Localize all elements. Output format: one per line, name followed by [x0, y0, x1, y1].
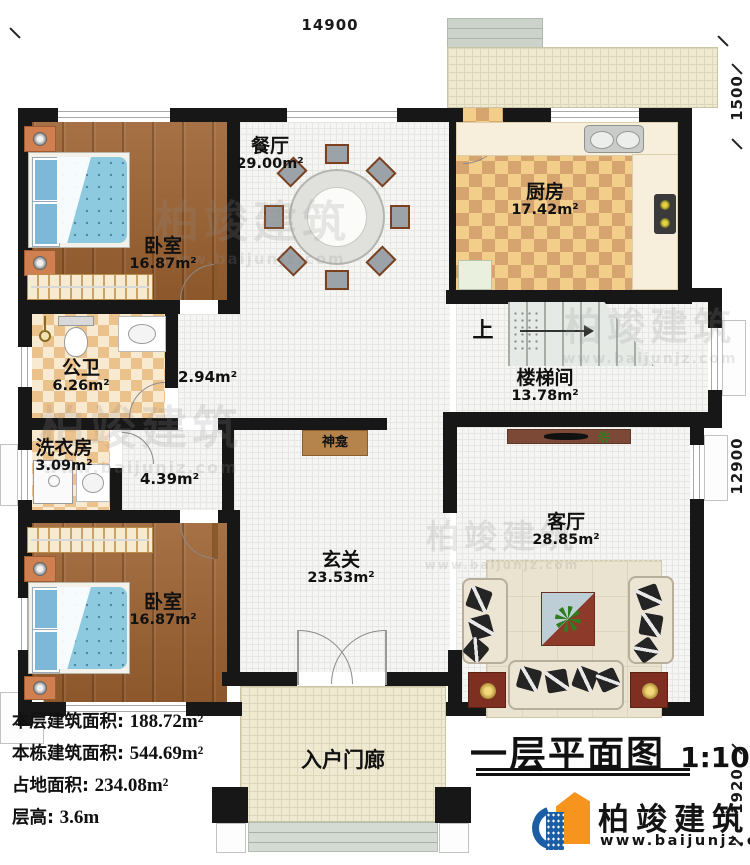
- wall: [165, 314, 178, 388]
- door-leaf: [385, 630, 387, 685]
- stats-label: 本层建筑面积:: [12, 712, 124, 732]
- wall: [218, 300, 240, 314]
- wall: [18, 510, 180, 523]
- lamp: [33, 681, 47, 695]
- kitchen-counter: [456, 122, 678, 156]
- nightstand: [24, 556, 56, 582]
- wardrobe: [27, 274, 153, 300]
- drain-cord: [44, 316, 46, 330]
- room-name: 客厅: [518, 512, 614, 533]
- room-name: 洗衣房: [16, 438, 112, 459]
- bed-pillow: [33, 158, 59, 202]
- room-label-kitchen: 厨房 17.42m²: [497, 182, 593, 218]
- window: [690, 445, 704, 499]
- bed-pillow: [33, 202, 59, 246]
- stats-value: 234.08m²: [95, 775, 169, 796]
- shrine-label: 神龛: [322, 435, 348, 450]
- room-area: 29.00m²: [222, 157, 318, 173]
- stairs-up-label: 上: [468, 314, 498, 344]
- lamp: [33, 132, 47, 146]
- coffee-table-plant: [555, 606, 581, 632]
- wardrobe-rod: [31, 539, 149, 541]
- wall: [449, 154, 456, 290]
- wall: [222, 672, 297, 686]
- logo-url: www.baijunjz.com: [600, 833, 750, 849]
- room-label-dining: 餐厅 29.00m²: [222, 136, 318, 172]
- dining-chair: [325, 270, 349, 290]
- stats-row: 本层建筑面积: 188.72m²: [12, 706, 282, 738]
- porch-column: [435, 787, 471, 823]
- wall: [446, 290, 692, 304]
- table-lamp: [642, 683, 658, 699]
- nightstand: [24, 676, 56, 700]
- room-label-laundry: 洗衣房 3.09m²: [16, 438, 112, 474]
- title-scale: 1:100: [680, 741, 750, 774]
- door-leaf: [214, 264, 218, 300]
- table-lamp: [480, 683, 496, 699]
- room-label-stairwell: 楼梯间 13.78m²: [497, 368, 593, 404]
- tv: [544, 433, 588, 440]
- dimension-right-middle: 12900: [728, 421, 746, 511]
- door-leaf: [214, 523, 218, 559]
- tv-console: [507, 429, 631, 444]
- stats-label: 本栋建筑面积:: [12, 744, 124, 764]
- hall-small-floor: [178, 314, 240, 418]
- sink-basin: [590, 131, 614, 149]
- sofa-pillow: [638, 612, 663, 637]
- terrace-steps: [447, 18, 543, 48]
- toilet-bowl: [64, 327, 88, 357]
- window: [58, 108, 170, 122]
- kitchen-sink: [584, 125, 644, 153]
- dimension-top: 14900: [285, 16, 375, 34]
- room-label-bedroom-top: 卧室 16.87m²: [115, 236, 211, 272]
- title-underline: [476, 768, 690, 771]
- stairs-direction-line: [520, 330, 584, 332]
- sink-basin: [616, 131, 640, 149]
- wall: [218, 510, 240, 523]
- dining-chair: [264, 205, 284, 229]
- room-area: 6.26m²: [33, 379, 129, 395]
- lamp: [33, 256, 47, 270]
- wall: [18, 300, 180, 314]
- room-name: 厨房: [497, 182, 593, 203]
- stats-row: 本栋建筑面积: 544.69m²: [12, 738, 282, 770]
- door-leaf: [297, 630, 299, 685]
- hall-large-area: 4.39m²: [140, 470, 199, 488]
- wardrobe-rod: [31, 286, 149, 288]
- stats-label: 层高:: [12, 808, 54, 828]
- dimension-tick: [9, 27, 20, 38]
- window-sill: [704, 435, 728, 501]
- room-label-living: 客厅 28.85m²: [518, 512, 614, 548]
- wall: [227, 523, 240, 672]
- floor-plan: 上 神龛 柏竣建筑 www.baijunjz.com 柏竣建筑 www.baij…: [0, 0, 750, 865]
- side-table: [468, 672, 506, 708]
- sofa-pillow: [544, 668, 569, 693]
- stats-label: 占地面积:: [12, 776, 89, 796]
- bed: [28, 152, 130, 248]
- side-table: [630, 672, 668, 708]
- room-label-bathroom: 公卫 6.26m²: [33, 358, 129, 394]
- room-name: 卧室: [115, 592, 211, 613]
- stairs-handrail-dots: [512, 310, 538, 354]
- room-name: 楼梯间: [497, 368, 593, 389]
- room-area: 23.53m²: [293, 571, 389, 587]
- wall: [18, 418, 178, 430]
- logo-tower-blue: [546, 812, 564, 850]
- dimension-tick: [717, 35, 728, 46]
- room-area: 28.85m²: [518, 533, 614, 549]
- wall: [443, 412, 708, 427]
- window: [708, 328, 722, 390]
- room-area: 17.42m²: [497, 203, 593, 219]
- stairs-arrow: [584, 325, 594, 337]
- bed-pillow: [33, 630, 59, 672]
- room-name: 卧室: [115, 236, 211, 257]
- sink-basin: [128, 324, 156, 344]
- nightstand: [24, 126, 56, 152]
- toilet: [58, 316, 94, 326]
- bed-pillow: [33, 588, 59, 630]
- wardrobe: [27, 527, 153, 553]
- room-name: 玄关: [293, 550, 389, 571]
- room-area: 3.09m²: [16, 459, 112, 475]
- dining-chair: [390, 205, 410, 229]
- console-plant: [598, 431, 610, 443]
- porch-column-base: [439, 823, 469, 853]
- hall-small-area: 2.94m²: [178, 368, 237, 386]
- dining-table-top: [307, 187, 367, 247]
- stats-row: 层高: 3.6m: [12, 802, 282, 834]
- dimension-tick: [731, 138, 742, 149]
- stats-value: 544.69m²: [130, 743, 204, 764]
- dining-chair: [325, 144, 349, 164]
- stats-value: 188.72m²: [130, 711, 204, 732]
- washer-dial: [48, 475, 60, 487]
- stats-value: 3.6m: [60, 807, 100, 828]
- room-area: 16.87m²: [115, 257, 211, 273]
- room-name: 公卫: [33, 358, 129, 379]
- logo: 柏竣建筑 www.baijunjz.com: [530, 790, 745, 856]
- room-name: 餐厅: [222, 136, 318, 157]
- burner: [660, 218, 670, 228]
- wall: [443, 418, 457, 513]
- wall: [678, 108, 692, 302]
- sink-basin: [82, 473, 104, 493]
- window-sill: [722, 320, 746, 396]
- room-area: 16.87m²: [115, 613, 211, 629]
- wall: [110, 468, 122, 510]
- stove: [654, 194, 676, 234]
- wall: [222, 428, 234, 510]
- wall: [218, 418, 387, 430]
- porch-label: 入户门廊: [278, 744, 408, 774]
- fridge: [458, 260, 492, 290]
- window: [287, 108, 397, 122]
- wall: [385, 672, 460, 686]
- title-underline: [476, 773, 690, 776]
- kitchen-door-threshold: [463, 108, 503, 122]
- floor-drain: [39, 330, 51, 342]
- room-label-foyer: 玄关 23.53m²: [293, 550, 389, 586]
- window: [551, 108, 639, 122]
- burner: [660, 200, 670, 210]
- logo-building-icon: [530, 790, 592, 854]
- bathroom-sink: [118, 316, 166, 352]
- nightstand: [24, 250, 56, 276]
- room-label-bedroom-bottom: 卧室 16.87m²: [115, 592, 211, 628]
- stats-row: 占地面积: 234.08m²: [12, 770, 282, 802]
- window: [18, 347, 32, 387]
- terrace: [447, 47, 718, 108]
- shrine-cabinet: 神龛: [302, 430, 368, 456]
- lamp: [33, 562, 47, 576]
- stats-block: 本层建筑面积: 188.72m² 本栋建筑面积: 544.69m² 占地面积: …: [12, 706, 282, 834]
- room-area: 13.78m²: [497, 389, 593, 405]
